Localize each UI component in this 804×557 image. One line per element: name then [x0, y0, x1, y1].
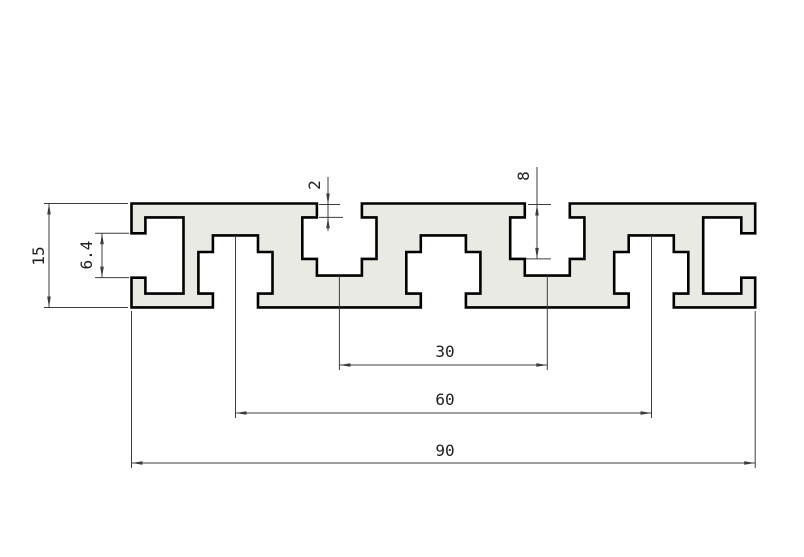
dimension-arrowhead	[132, 461, 143, 465]
dimension-arrowhead	[47, 297, 51, 308]
dim-label-90: 90	[435, 441, 454, 460]
dimension-arrowhead	[339, 363, 350, 367]
technical-drawing-page: 156.428306090	[0, 0, 804, 557]
dimension-arrowhead	[536, 363, 547, 367]
extrusion-profile-drawing: 156.428306090	[0, 0, 804, 557]
dimension-arrowhead	[236, 411, 247, 415]
dimension-arrowhead	[326, 194, 330, 205]
dimension-arrowhead	[535, 248, 539, 259]
dimension-arrowhead	[100, 267, 104, 278]
dim-label-6-4: 6.4	[77, 241, 96, 270]
dim-label-15: 15	[29, 246, 48, 265]
dim-label-8: 8	[514, 171, 533, 181]
dimension-6-4: 6.4	[77, 233, 129, 277]
dimension-arrowhead	[535, 205, 539, 216]
dim-label-60: 60	[435, 390, 454, 409]
dimension-arrowhead	[641, 411, 652, 415]
dim-label-2: 2	[305, 180, 324, 190]
dimension-arrowhead	[100, 233, 104, 244]
profile-outline	[132, 204, 756, 308]
dimension-arrowhead	[47, 204, 51, 215]
dimension-arrowhead	[326, 217, 330, 228]
dimension-arrowhead	[744, 461, 755, 465]
dim-label-30: 30	[435, 342, 454, 361]
